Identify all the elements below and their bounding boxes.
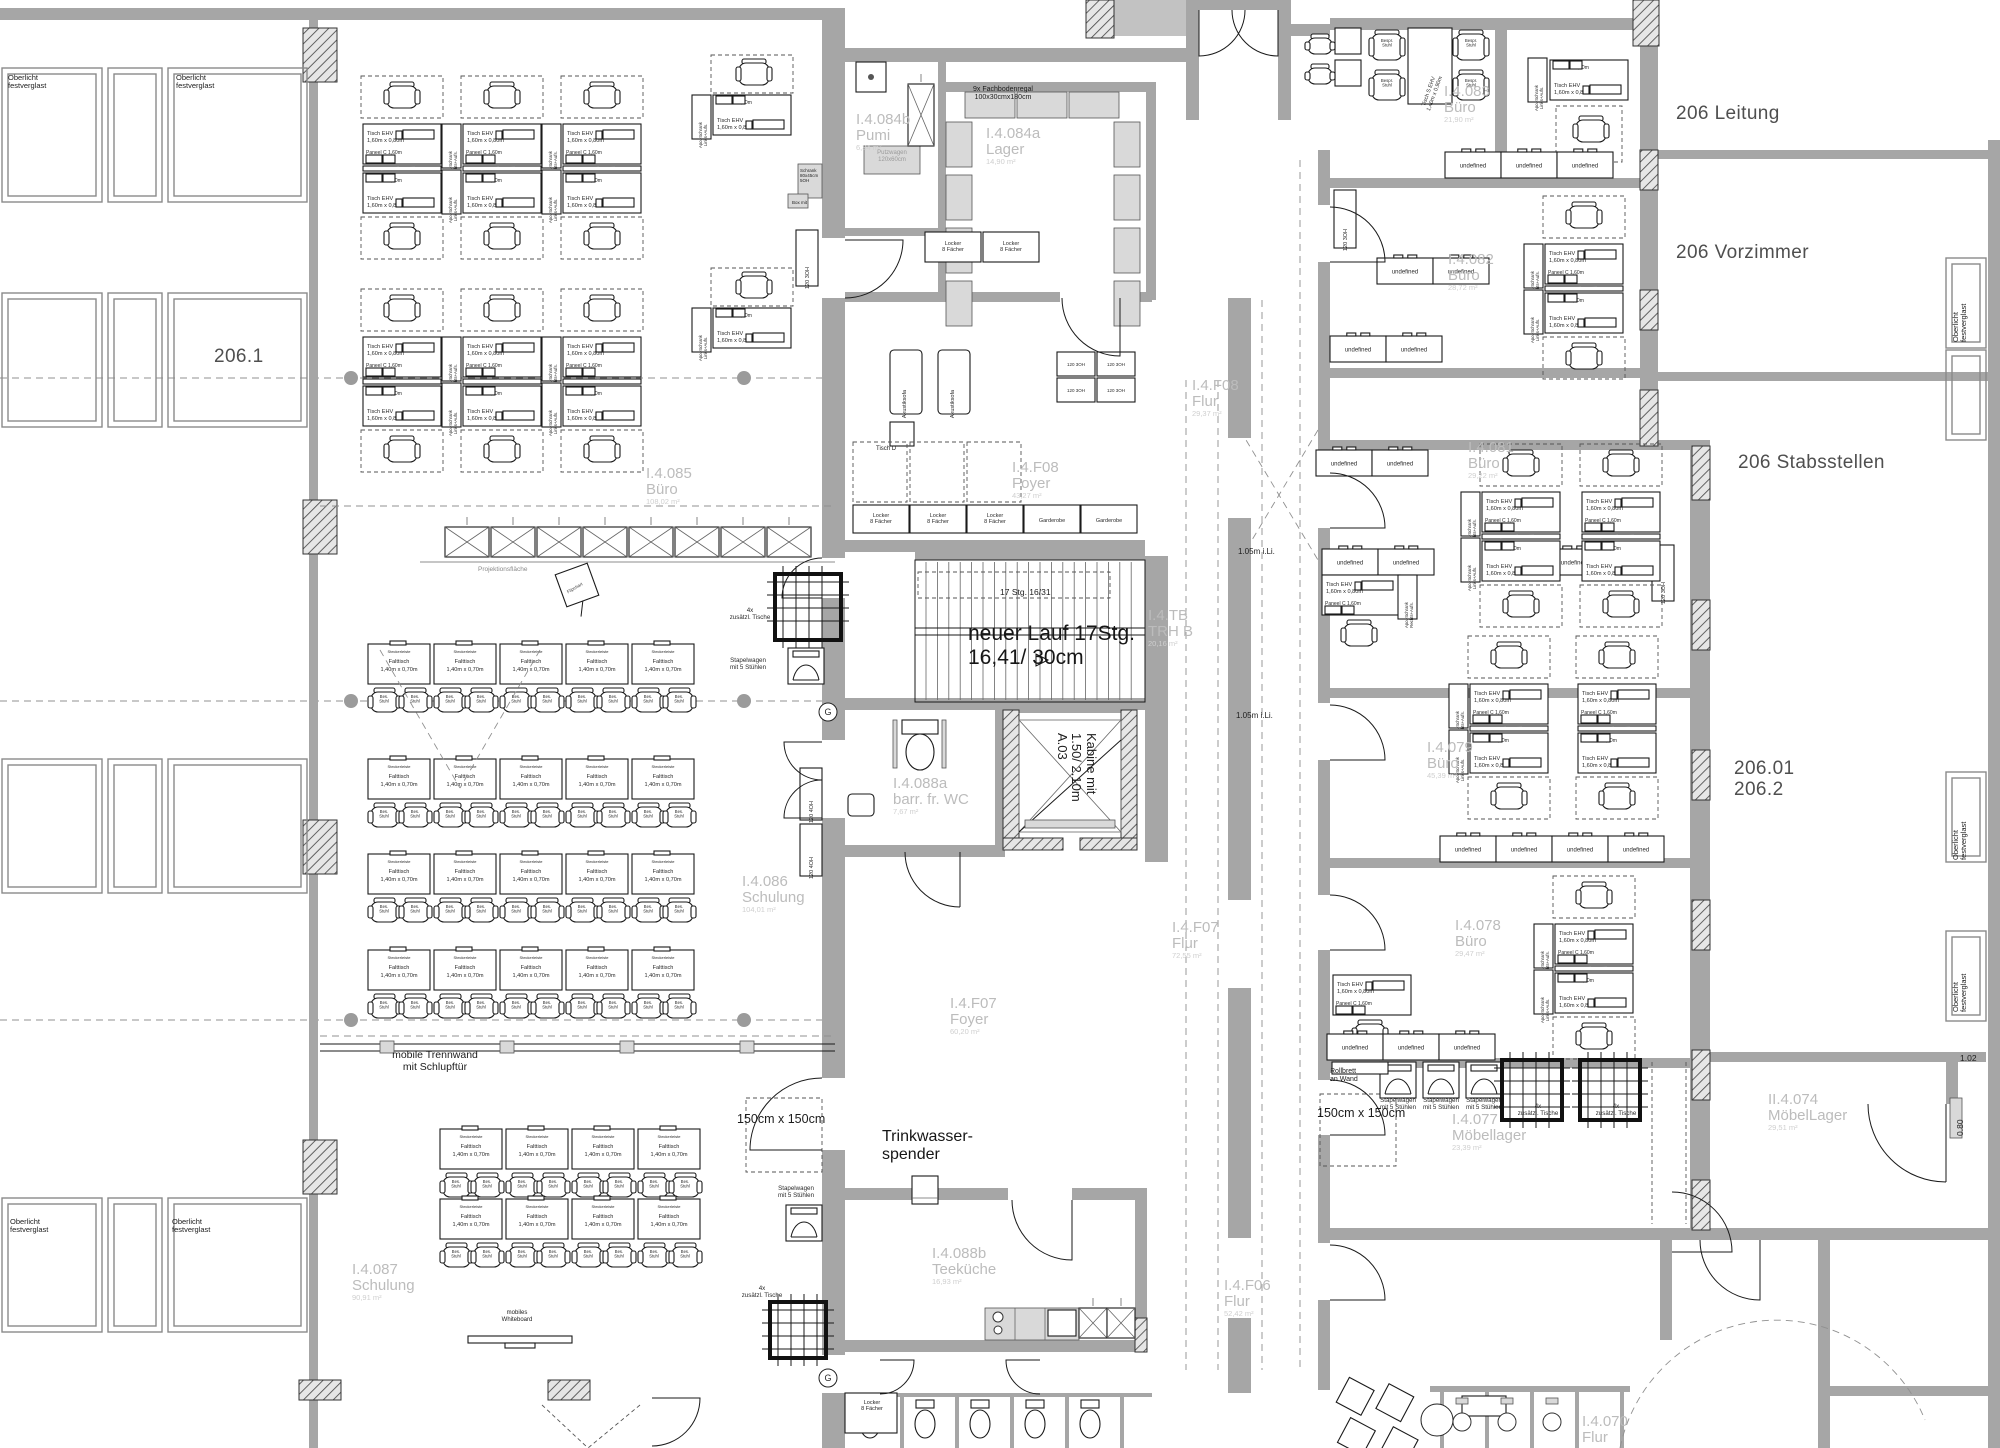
bes-stuhl-label: Bes.Stuhl bbox=[548, 1179, 558, 1189]
bes-stuhl-label: Bes.Stuhl bbox=[674, 694, 684, 704]
cabinet-label: 120 3OH bbox=[1067, 362, 1085, 367]
desk-tisch-ehv: Tisch EHV1,60m x 0,80mPaneel C 1,60m bbox=[463, 124, 541, 164]
bes-stuhl-label: Bes.Stuhl bbox=[379, 1000, 389, 1010]
cabinet-label: undefined bbox=[1448, 270, 1474, 276]
furniture-label: Falttisch bbox=[527, 1144, 548, 1150]
furniture-label: Tisch EHV bbox=[1486, 499, 1512, 505]
furniture-label: 1,40m x 0,70m bbox=[585, 1222, 622, 1228]
bes-stuhl-label: Bes.Stuhl bbox=[379, 694, 389, 704]
furniture-label: Falttisch bbox=[587, 774, 608, 780]
furniture-label: Tisch EHV bbox=[1582, 691, 1608, 697]
door-arc bbox=[1330, 1080, 1385, 1135]
tische4-label: 4xzusätzl. Tische bbox=[1596, 1103, 1637, 1117]
bes-stuhl-label: Bes.Stuhl bbox=[511, 809, 521, 819]
tische4-label: 4xzusätzl. Tische bbox=[742, 1285, 783, 1299]
cabinet-vertical: 120 4OH bbox=[800, 824, 822, 879]
falttisch-table: SteckerleisteFalttisch1,40m x 0,70mBes.S… bbox=[368, 641, 432, 712]
desk-tisch-ehv: Paneel C 1,60mTisch EHV1,60m x 0,80m bbox=[1550, 60, 1628, 100]
furniture-label: 1,40m x 0,70m bbox=[513, 877, 550, 883]
cabinet-120-3oh: undefined bbox=[1316, 447, 1372, 476]
apo-schrank-cabinet: Apo.-SchrankLinks+Aufs. bbox=[1449, 730, 1468, 783]
x-storage-box bbox=[1107, 1298, 1135, 1338]
furniture-label: Falttisch bbox=[587, 659, 608, 665]
apo-schrank-cabinet: Apo.-SchrankRechts+Aufs. bbox=[1534, 924, 1553, 977]
office-chair-icon bbox=[1576, 1023, 1612, 1049]
furniture-label: Falttisch bbox=[455, 659, 476, 665]
office-chair-icon bbox=[1491, 642, 1527, 668]
falttisch-table: SteckerleisteFalttisch1,40m x 0,70mBes.S… bbox=[434, 641, 498, 712]
furniture-label: Falttisch bbox=[461, 1214, 482, 1220]
desk-pair-cluster: Tisch EHV1,60m x 0,80mPaneel C 1,60mPane… bbox=[1534, 876, 1635, 1059]
toilet-icon bbox=[1025, 1410, 1045, 1438]
furniture-label: Falttisch bbox=[587, 869, 608, 875]
hatched-wall bbox=[1080, 838, 1137, 850]
office-chair-icon bbox=[736, 59, 772, 85]
hatched-wall bbox=[1692, 1050, 1710, 1100]
steckerleiste-label: Steckerleiste bbox=[454, 955, 478, 960]
furniture-label: Tisch EHV bbox=[1586, 499, 1612, 505]
hatched-wall bbox=[1003, 710, 1019, 840]
furniture-label: Falttisch bbox=[659, 1214, 680, 1220]
bespr-stuhl-label: Bespr.Stuhl bbox=[1381, 78, 1393, 88]
furniture-label: Tisch EHV bbox=[1582, 756, 1608, 762]
apo-schrank-label: Apo.-SchrankLinks+Aufs. bbox=[1530, 316, 1540, 343]
office-chair-icon bbox=[1566, 343, 1602, 369]
cabinet-vertical: 120 3OH bbox=[796, 230, 818, 289]
bes-stuhl-label: Bes.Stuhl bbox=[577, 809, 587, 819]
furniture-label: Tisch EHV bbox=[1486, 564, 1512, 570]
office-chair-icon bbox=[1491, 783, 1527, 809]
cabinet-label: 120 4OH bbox=[809, 801, 815, 823]
bes-stuhl-label: Bes.Stuhl bbox=[445, 1000, 455, 1010]
apo-schrank-cabinet: Apo.-SchrankLinks+Aufs. bbox=[1528, 58, 1547, 111]
hatched-wall bbox=[1135, 1318, 1147, 1352]
steckerleiste-label: Steckerleiste bbox=[586, 859, 610, 864]
apo-schrank-label: Apo.-SchrankLinks+Aufs. bbox=[698, 121, 708, 148]
apo-schrank-label: Apo.-SchrankLinks+Aufs. bbox=[1467, 564, 1477, 591]
cabinet-label: undefined bbox=[1623, 848, 1649, 854]
falttisch-table: SteckerleisteFalttisch1,40m x 0,70mBes.S… bbox=[572, 1196, 636, 1267]
desk-tisch-ehv: Tisch EHV1,60m x 0,80mPaneel C 1,60m bbox=[1555, 924, 1633, 964]
cabinet-label: undefined bbox=[1401, 348, 1427, 354]
cabinet-120-3oh: undefined bbox=[1378, 546, 1434, 575]
cabinet-label: undefined bbox=[1331, 462, 1357, 468]
falttisch-table: SteckerleisteFalttisch1,40m x 0,70mBes.S… bbox=[632, 851, 696, 922]
tische4-label: 4xzusätzl. Tische bbox=[730, 607, 771, 621]
door-arc bbox=[880, 1360, 914, 1394]
apo-schrank-cabinet: Apo.-SchrankRechts+Aufs. bbox=[442, 124, 461, 177]
stair-direction-arrow bbox=[1036, 654, 1048, 666]
furniture-label: 1,40m x 0,70m bbox=[645, 973, 682, 979]
bes-stuhl-label: Bes.Stuhl bbox=[445, 904, 455, 914]
office-chair-icon bbox=[1603, 591, 1639, 617]
apo-schrank-cabinet: Apo.-SchrankRechts+Aufs. bbox=[1524, 244, 1543, 297]
falttisch-table: SteckerleisteFalttisch1,40m x 0,70mBes.S… bbox=[638, 1126, 702, 1197]
bes-stuhl-label: Bes.Stuhl bbox=[410, 904, 420, 914]
bes-stuhl-label: Bes.Stuhl bbox=[410, 809, 420, 819]
bes-stuhl-label: Bes.Stuhl bbox=[542, 1000, 552, 1010]
furniture-label: Falttisch bbox=[659, 1144, 680, 1150]
toilet-icon bbox=[970, 1410, 990, 1438]
cabinet-120-3oh: undefined bbox=[1327, 1031, 1383, 1060]
hatched-wall bbox=[548, 1380, 590, 1400]
falttisch-table: SteckerleisteFalttisch1,40m x 0,70mBes.S… bbox=[500, 947, 564, 1018]
desk-tisch-ehv: Paneel C 1,60mTisch EHV1,60m x 0,80m bbox=[713, 95, 791, 135]
furniture-label: 1,40m x 0,70m bbox=[585, 1152, 622, 1158]
furniture-label: 1,40m x 0,70m bbox=[651, 1222, 688, 1228]
garderobe-label: Garderobe bbox=[1096, 518, 1122, 524]
furniture-label: Falttisch bbox=[521, 869, 542, 875]
stapelwagen-label: Stapelwagenmit 5 Stühlen bbox=[1466, 1097, 1503, 1111]
bes-stuhl-label: Bes.Stuhl bbox=[643, 904, 653, 914]
steckerleiste-label: Steckerleiste bbox=[454, 859, 478, 864]
apo-schrank-cabinet: Apo.-SchrankLinks+Aufs. bbox=[1461, 538, 1480, 591]
bes-stuhl-label: Bes.Stuhl bbox=[577, 694, 587, 704]
office-chair-icon bbox=[1341, 620, 1377, 646]
hatched-wall bbox=[1692, 446, 1710, 500]
steckerleiste-label: Steckerleiste bbox=[652, 859, 676, 864]
bespr-stuhl-label: Bespr.Stuhl bbox=[1381, 38, 1393, 48]
desk-tisch-ehv: Tisch EHV1,60m x 0,80mPaneel C 1,60m bbox=[1545, 244, 1623, 284]
furniture-label: Tisch EHV bbox=[1554, 83, 1580, 89]
furniture-label: Falttisch bbox=[389, 659, 410, 665]
desk-tisch-ehv: Tisch EHV1,60m x 0,80mPaneel C 1,60m bbox=[1582, 492, 1660, 532]
walls-layer bbox=[0, 0, 2000, 1448]
bes-stuhl-label: Bes.Stuhl bbox=[410, 1000, 420, 1010]
cabinet-label: undefined bbox=[1511, 848, 1537, 854]
furniture-label: Falttisch bbox=[461, 1144, 482, 1150]
furniture-label: Tisch EHV bbox=[717, 118, 743, 124]
akustiksofa-label: Akustiksofa bbox=[950, 389, 956, 418]
furniture-label: 1,40m x 0,70m bbox=[447, 973, 484, 979]
office-chair-icon bbox=[736, 272, 772, 298]
hatched-wall bbox=[1640, 290, 1658, 330]
desk-tisch-ehv: Tisch EHV1,60m x 0,80mPaneel C 1,60m bbox=[1333, 975, 1411, 1015]
x-storage-box bbox=[1079, 1298, 1107, 1338]
office-chair-icon bbox=[1599, 642, 1635, 668]
office-chair-icon bbox=[584, 436, 620, 462]
steckerleiste-label: Steckerleiste bbox=[592, 1134, 616, 1139]
desk-tisch-ehv: Paneel C 1,60mTisch EHV1,60m x 0,80m bbox=[563, 173, 641, 213]
furniture-label: 1,40m x 0,70m bbox=[453, 1222, 490, 1228]
falttisch-table: SteckerleisteFalttisch1,40m x 0,70mBes.S… bbox=[632, 947, 696, 1018]
falttisch-table: SteckerleisteFalttisch1,40m x 0,70mBes.S… bbox=[632, 641, 696, 712]
floor-plan-canvas: Tisch EHV1,60m x 0,80mPaneel C 1,60mPane… bbox=[0, 0, 2000, 1448]
cabinet-120-3oh: undefined bbox=[1439, 1031, 1495, 1060]
cabinet-label: 120 3OH bbox=[1661, 582, 1667, 604]
office-chair-icon bbox=[484, 223, 520, 249]
bes-stuhl-label: Bes.Stuhl bbox=[451, 1179, 461, 1189]
steckerleiste-label: Steckerleiste bbox=[520, 955, 544, 960]
furniture-label: 1,40m x 0,70m bbox=[513, 782, 550, 788]
desk-tisch-ehv: Tisch EHV1,60m x 0,80mPaneel C 1,60m bbox=[1322, 575, 1400, 615]
office-chair-icon bbox=[384, 82, 420, 108]
falttisch-table: SteckerleisteFalttisch1,40m x 0,70mBes.S… bbox=[566, 641, 630, 712]
furniture-label: Falttisch bbox=[389, 965, 410, 971]
apo-schrank-label: Apo.-SchrankLinks+Aufs. bbox=[548, 196, 558, 223]
furniture-label: 1,40m x 0,70m bbox=[381, 973, 418, 979]
steckerleiste-label: Steckerleiste bbox=[586, 955, 610, 960]
apo-schrank-label: Apo.-SchrankLinks+Aufs. bbox=[1455, 756, 1465, 783]
desk-pair-cluster: Tisch EHV1,60m x 0,80mPaneel C 1,60mPane… bbox=[361, 76, 443, 259]
furniture-label: 1,40m x 0,70m bbox=[447, 782, 484, 788]
office-chair-icon bbox=[1603, 450, 1639, 476]
steckerleiste-label: Steckerleiste bbox=[526, 1204, 550, 1209]
bes-stuhl-label: Bes.Stuhl bbox=[542, 809, 552, 819]
cabinet-120-3oh: undefined bbox=[1440, 833, 1496, 862]
desk-tisch-ehv: Paneel C 1,60mTisch EHV1,60m x 0,80m bbox=[463, 173, 541, 213]
furniture-label: 1,40m x 0,70m bbox=[579, 877, 616, 883]
bes-stuhl-label: Bes.Stuhl bbox=[511, 694, 521, 704]
x-storage-box bbox=[767, 517, 811, 557]
falttisch-table: SteckerleisteFalttisch1,40m x 0,70mBes.S… bbox=[506, 1126, 570, 1197]
bes-stuhl-label: Bes.Stuhl bbox=[476, 809, 486, 819]
stapelwagen-chair-icon bbox=[1466, 1062, 1502, 1098]
meeting-table-group: Tisch S EHV1,40m x 0,90mBespr.StuhlBespr… bbox=[1369, 28, 1489, 112]
cabinet-label: undefined bbox=[1572, 164, 1598, 170]
falttisch-table: SteckerleisteFalttisch1,40m x 0,70mBes.S… bbox=[434, 756, 498, 827]
garderobe-label: Garderobe bbox=[1039, 518, 1065, 524]
desk-tisch-ehv: Paneel C 1,60mTisch EHV1,60m x 0,80m bbox=[363, 173, 441, 213]
furniture-label: Tisch EHV bbox=[1474, 691, 1500, 697]
door-arc bbox=[1006, 1360, 1040, 1394]
furniture-label: 1,40m x 0,70m bbox=[645, 667, 682, 673]
hatched-wall bbox=[1633, 0, 1659, 46]
toilet-icon bbox=[906, 734, 934, 770]
cabinet-120-3oh: undefined bbox=[1330, 333, 1386, 362]
furniture-label: Falttisch bbox=[593, 1214, 614, 1220]
bes-stuhl-label: Bes.Stuhl bbox=[517, 1179, 527, 1189]
door-arc bbox=[1330, 473, 1385, 528]
furniture-label: Tisch EHV bbox=[1549, 316, 1575, 322]
desk-tisch-ehv: Tisch EHV1,60m x 0,80mPaneel C 1,60m bbox=[363, 337, 441, 377]
loose-chairs-group bbox=[1320, 1366, 1435, 1448]
hatched-wall bbox=[303, 28, 337, 82]
bes-stuhl-label: Bes.Stuhl bbox=[608, 809, 618, 819]
falttisch-table: SteckerleisteFalttisch1,40m x 0,70mBes.S… bbox=[500, 756, 564, 827]
cabinet-120-3oh: undefined bbox=[1552, 833, 1608, 862]
desk-pair-cluster: Tisch EHV1,60m x 0,80mPaneel C 1,60mPane… bbox=[461, 76, 543, 259]
office-chair-icon bbox=[1573, 116, 1609, 142]
floor-plan-svg: Tisch EHV1,60m x 0,80mPaneel C 1,60mPane… bbox=[0, 0, 2000, 1448]
door-arc bbox=[1868, 1104, 1946, 1182]
bes-stuhl-label: Bes.Stuhl bbox=[548, 1249, 558, 1259]
desk-tisch-ehv: Tisch EHV1,60m x 0,80mPaneel C 1,60m bbox=[1470, 684, 1548, 724]
bes-stuhl-label: Bes.Stuhl bbox=[577, 904, 587, 914]
x-storage-box bbox=[908, 74, 934, 146]
falttisch-table: SteckerleisteFalttisch1,40m x 0,70mBes.S… bbox=[566, 851, 630, 922]
falttisch-table: SteckerleisteFalttisch1,40m x 0,70mBes.S… bbox=[638, 1196, 702, 1267]
x-storage-box bbox=[721, 517, 765, 557]
cabinet-label: undefined bbox=[1342, 1046, 1368, 1052]
bespr-stuhl-label: Bespr.Stuhl bbox=[1465, 78, 1477, 88]
x-storage-box bbox=[445, 517, 489, 557]
desk-pair-cluster: Tisch EHV1,60m x 0,80mPaneel C 1,60mPane… bbox=[1524, 196, 1625, 379]
falttisch-table: SteckerleisteFalttisch1,40m x 0,70mBes.S… bbox=[434, 947, 498, 1018]
cabinet-label: 120 3OH bbox=[1343, 229, 1349, 251]
bes-stuhl-label: Bes.Stuhl bbox=[643, 694, 653, 704]
bes-stuhl-label: Bes.Stuhl bbox=[482, 1249, 492, 1259]
door-arc bbox=[1330, 1245, 1385, 1300]
furniture-label: Tisch EHV bbox=[1337, 982, 1363, 988]
single-desk-group: Paneel C 1,60mTisch EHV1,60m x 0,80mApo.… bbox=[692, 268, 793, 361]
furniture-label: Falttisch bbox=[521, 965, 542, 971]
locker-label: Locker8 Fächer bbox=[984, 513, 1006, 525]
furniture-label: Tisch EHV bbox=[567, 344, 593, 350]
bes-stuhl-label: Bes.Stuhl bbox=[614, 1179, 624, 1189]
furniture-label: 1,40m x 0,70m bbox=[519, 1222, 556, 1228]
apo-schrank-cabinet: Apo.-SchrankRechts+Aufs. bbox=[1398, 575, 1417, 628]
apo-schrank-cabinet: Apo.-SchrankLinks+Aufs. bbox=[692, 308, 711, 361]
desk-pair-cluster: Tisch EHV1,60m x 0,80mPaneel C 1,60mPane… bbox=[1580, 444, 1662, 627]
cabinet-label: undefined bbox=[1455, 848, 1481, 854]
furniture-label: Falttisch bbox=[521, 774, 542, 780]
door-arc bbox=[1062, 298, 1120, 356]
apo-schrank-cabinet: Apo.-SchrankLinks+Aufs. bbox=[692, 95, 711, 148]
apo-schrank-cabinet: Apo.-SchrankLinks+Aufs. bbox=[442, 170, 461, 223]
cabinet-label: undefined bbox=[1567, 848, 1593, 854]
toilet-icon bbox=[1080, 1410, 1100, 1438]
bes-stuhl-label: Bes.Stuhl bbox=[643, 809, 653, 819]
furniture-label: Tisch EHV bbox=[567, 196, 593, 202]
desk-pair-cluster: Tisch EHV1,60m x 0,80mPaneel C 1,60mPane… bbox=[461, 289, 543, 472]
falttisch-table: SteckerleisteFalttisch1,40m x 0,70mBes.S… bbox=[368, 947, 432, 1018]
stapelwagen-label: Stapelwagenmit 5 Stühlen bbox=[1380, 1097, 1417, 1111]
furniture-label: Falttisch bbox=[653, 659, 674, 665]
cabinet-120-3oh: undefined bbox=[1445, 149, 1501, 178]
steckerleiste-label: Steckerleiste bbox=[586, 649, 610, 654]
desk-pair-cluster: Tisch EHV1,60m x 0,80mPaneel C 1,60mPane… bbox=[361, 289, 443, 472]
grid-g-marker: G bbox=[824, 707, 831, 717]
furniture-label: Falttisch bbox=[527, 1214, 548, 1220]
office-chair-icon bbox=[484, 82, 520, 108]
cabinet-label: 120 4OH bbox=[809, 857, 815, 879]
hatched-wall bbox=[303, 820, 337, 874]
x-storage-box bbox=[675, 517, 719, 557]
hatched-wall bbox=[1692, 900, 1710, 950]
apo-schrank-cabinet: Apo.-SchrankRechts+Aufs. bbox=[542, 124, 561, 177]
furniture-label: Falttisch bbox=[389, 869, 410, 875]
falttisch-table: SteckerleisteFalttisch1,40m x 0,70mBes.S… bbox=[434, 851, 498, 922]
steckerleiste-label: Steckerleiste bbox=[658, 1134, 682, 1139]
falttisch-table: SteckerleisteFalttisch1,40m x 0,70mBes.S… bbox=[506, 1196, 570, 1267]
door-arc bbox=[782, 558, 822, 598]
apo-schrank-label: Apo.-SchrankLinks+Aufs. bbox=[548, 409, 558, 436]
bes-stuhl-label: Bes.Stuhl bbox=[476, 694, 486, 704]
door-arc bbox=[845, 240, 903, 298]
falttisch-table: SteckerleisteFalttisch1,40m x 0,70mBes.S… bbox=[500, 641, 564, 712]
cabinet-120-3oh: undefined bbox=[1557, 149, 1613, 178]
cabinet-label: 120 3OH bbox=[1107, 362, 1125, 367]
furniture-label: Tisch EHV bbox=[467, 344, 493, 350]
bes-stuhl-label: Bes.Stuhl bbox=[410, 694, 420, 704]
apo-schrank-label: Apo.-SchrankLinks+Aufs. bbox=[698, 334, 708, 361]
bes-stuhl-label: Bes.Stuhl bbox=[542, 694, 552, 704]
steckerleiste-label: Steckerleiste bbox=[658, 1204, 682, 1209]
steckerleiste-label: Steckerleiste bbox=[520, 859, 544, 864]
furniture-label: Falttisch bbox=[455, 869, 476, 875]
furniture-label: 1,40m x 0,70m bbox=[381, 667, 418, 673]
falttisch-table: SteckerleisteFalttisch1,40m x 0,70mBes.S… bbox=[440, 1126, 504, 1197]
office-chair-icon bbox=[584, 295, 620, 321]
cabinet-120-3oh: undefined bbox=[1608, 833, 1664, 862]
desk-pair-cluster: Tisch EHV1,60m x 0,80mPaneel C 1,60mPane… bbox=[1576, 636, 1658, 819]
desk-pair-cluster: Tisch EHV1,60m x 0,80mPaneel C 1,60mPane… bbox=[1461, 444, 1562, 627]
cabinet-120-3oh: undefined bbox=[1501, 149, 1557, 178]
apo-schrank-cabinet: Apo.-SchrankLinks+Aufs. bbox=[1524, 290, 1543, 343]
cabinet-label: undefined bbox=[1393, 561, 1419, 567]
bes-stuhl-label: Bes.Stuhl bbox=[674, 904, 684, 914]
locker-label: Locker8 Fächer bbox=[1000, 241, 1022, 253]
bes-stuhl-label: Bes.Stuhl bbox=[511, 904, 521, 914]
furniture-label: Tisch EHV bbox=[467, 409, 493, 415]
desk-tisch-ehv: Paneel C 1,60mTisch EHV1,60m x 0,80m bbox=[1545, 293, 1623, 333]
steckerleiste-label: Steckerleiste bbox=[520, 649, 544, 654]
desk-tisch-ehv: Tisch EHV1,60m x 0,80mPaneel C 1,60m bbox=[1578, 684, 1656, 724]
cabinet-label: undefined bbox=[1454, 1046, 1480, 1052]
apo-schrank-cabinet: Apo.-SchrankRechts+Aufs. bbox=[1449, 684, 1468, 737]
apo-schrank-cabinet: Apo.-SchrankLinks+Aufs. bbox=[542, 170, 561, 223]
office-chair-icon bbox=[1503, 591, 1539, 617]
falttisch-table: SteckerleisteFalttisch1,40m x 0,70mBes.S… bbox=[500, 851, 564, 922]
bes-stuhl-label: Bes.Stuhl bbox=[577, 1000, 587, 1010]
locker-label: Locker8 Fächer bbox=[927, 513, 949, 525]
apo-schrank-cabinet: Apo.-SchrankRechts+Aufs. bbox=[442, 337, 461, 390]
furniture-label: Tisch EHV bbox=[1549, 251, 1575, 257]
furniture-label: Falttisch bbox=[587, 965, 608, 971]
steckerleiste-label: Steckerleiste bbox=[526, 1134, 550, 1139]
locker-label: Locker8 Fächer bbox=[870, 513, 892, 525]
flipchart-icon bbox=[555, 563, 603, 620]
furniture-label: Tisch EHV bbox=[1559, 996, 1585, 1002]
office-chair-icon bbox=[384, 295, 420, 321]
x-storage-box bbox=[491, 517, 535, 557]
furniture-label: Falttisch bbox=[653, 869, 674, 875]
furniture-label: Tisch EHV bbox=[467, 196, 493, 202]
door-arc bbox=[1700, 1240, 1760, 1300]
furniture-label: Falttisch bbox=[455, 965, 476, 971]
falttisch-table: SteckerleisteFalttisch1,40m x 0,70mBes.S… bbox=[368, 756, 432, 827]
furniture-label: 1,40m x 0,70m bbox=[519, 1152, 556, 1158]
akustiksofa-label: Akustiksofa bbox=[902, 389, 908, 418]
furniture-label: Tisch EHV bbox=[467, 131, 493, 137]
stapelwagen-label: Stapelwagenmit 5 Stühlen bbox=[778, 1185, 815, 1199]
hatched-wall bbox=[1086, 0, 1114, 38]
cabinet-label: undefined bbox=[1516, 164, 1542, 170]
furniture-label: 1,40m x 0,70m bbox=[651, 1152, 688, 1158]
hatched-wall bbox=[1003, 838, 1063, 850]
apo-schrank-cabinet: Apo.-SchrankLinks+Aufs. bbox=[542, 383, 561, 436]
bes-stuhl-label: Bes.Stuhl bbox=[445, 694, 455, 704]
cabinet-label: undefined bbox=[1337, 561, 1363, 567]
furniture-label: 1,40m x 0,70m bbox=[579, 667, 616, 673]
furniture-label: Falttisch bbox=[521, 659, 542, 665]
door-arc bbox=[652, 1398, 700, 1446]
grid-g-marker: G bbox=[824, 1373, 831, 1383]
desk-tisch-ehv: Paneel C 1,60mTisch EHV1,60m x 0,80m bbox=[1470, 733, 1548, 773]
bes-stuhl-label: Bes.Stuhl bbox=[542, 904, 552, 914]
apo-schrank-cabinet: Apo.-SchrankRechts+Aufs. bbox=[1461, 492, 1480, 545]
furniture-label: Tisch EHV bbox=[367, 409, 393, 415]
cabinet-vertical: 120 4OH bbox=[800, 768, 822, 823]
desk-tisch-ehv: Tisch EHV1,60m x 0,80mPaneel C 1,60m bbox=[563, 337, 641, 377]
furniture-label: 1,40m x 0,70m bbox=[513, 667, 550, 673]
furniture-label: Tisch EHV bbox=[717, 331, 743, 337]
furniture-label: Tisch EHV bbox=[367, 131, 393, 137]
furniture-label: Tisch EHV bbox=[367, 344, 393, 350]
falttisch-table: SteckerleisteFalttisch1,40m x 0,70mBes.S… bbox=[566, 756, 630, 827]
office-chair-icon bbox=[1599, 783, 1635, 809]
